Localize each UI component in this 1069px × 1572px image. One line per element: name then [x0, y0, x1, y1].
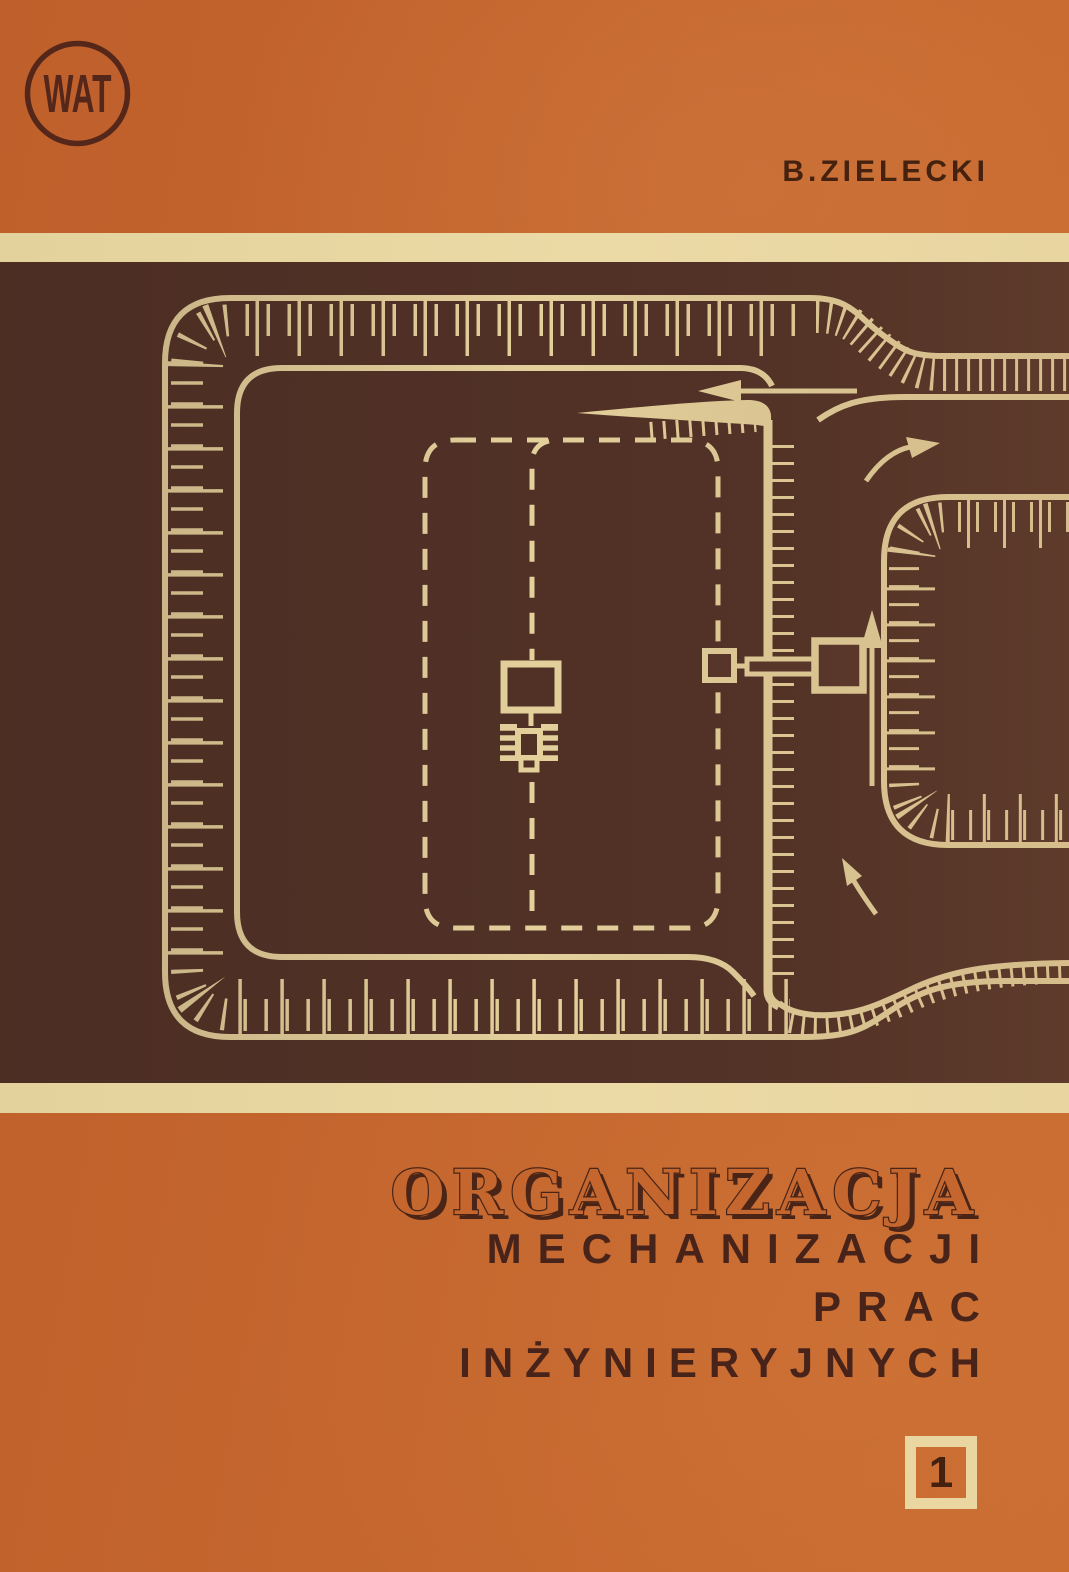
wat-publisher-logo: WAT [20, 36, 135, 151]
logo-text: WAT [44, 64, 112, 124]
cream-strip-bottom [0, 1083, 1069, 1113]
band-lighting-overlay [0, 262, 1069, 1083]
title-outline-text: ORGANIZACJA [391, 1156, 980, 1229]
book-cover: WAT B.ZIELECKI [0, 0, 1069, 1572]
volume-number-box: 1 [905, 1436, 977, 1509]
title-line-mechanizacji: MECHANIZACJI [487, 1228, 996, 1270]
title-line-inzynieryjnych: INŻYNIERYJNYCH [459, 1342, 992, 1384]
author-name: B.ZIELECKI [782, 155, 989, 189]
field-mechanization-scheme-diagram [0, 262, 1069, 1083]
volume-number: 1 [929, 1451, 953, 1495]
title-line-prac: PRAC [813, 1286, 996, 1328]
diagram-band [0, 262, 1069, 1083]
cream-strip-top [0, 233, 1069, 262]
